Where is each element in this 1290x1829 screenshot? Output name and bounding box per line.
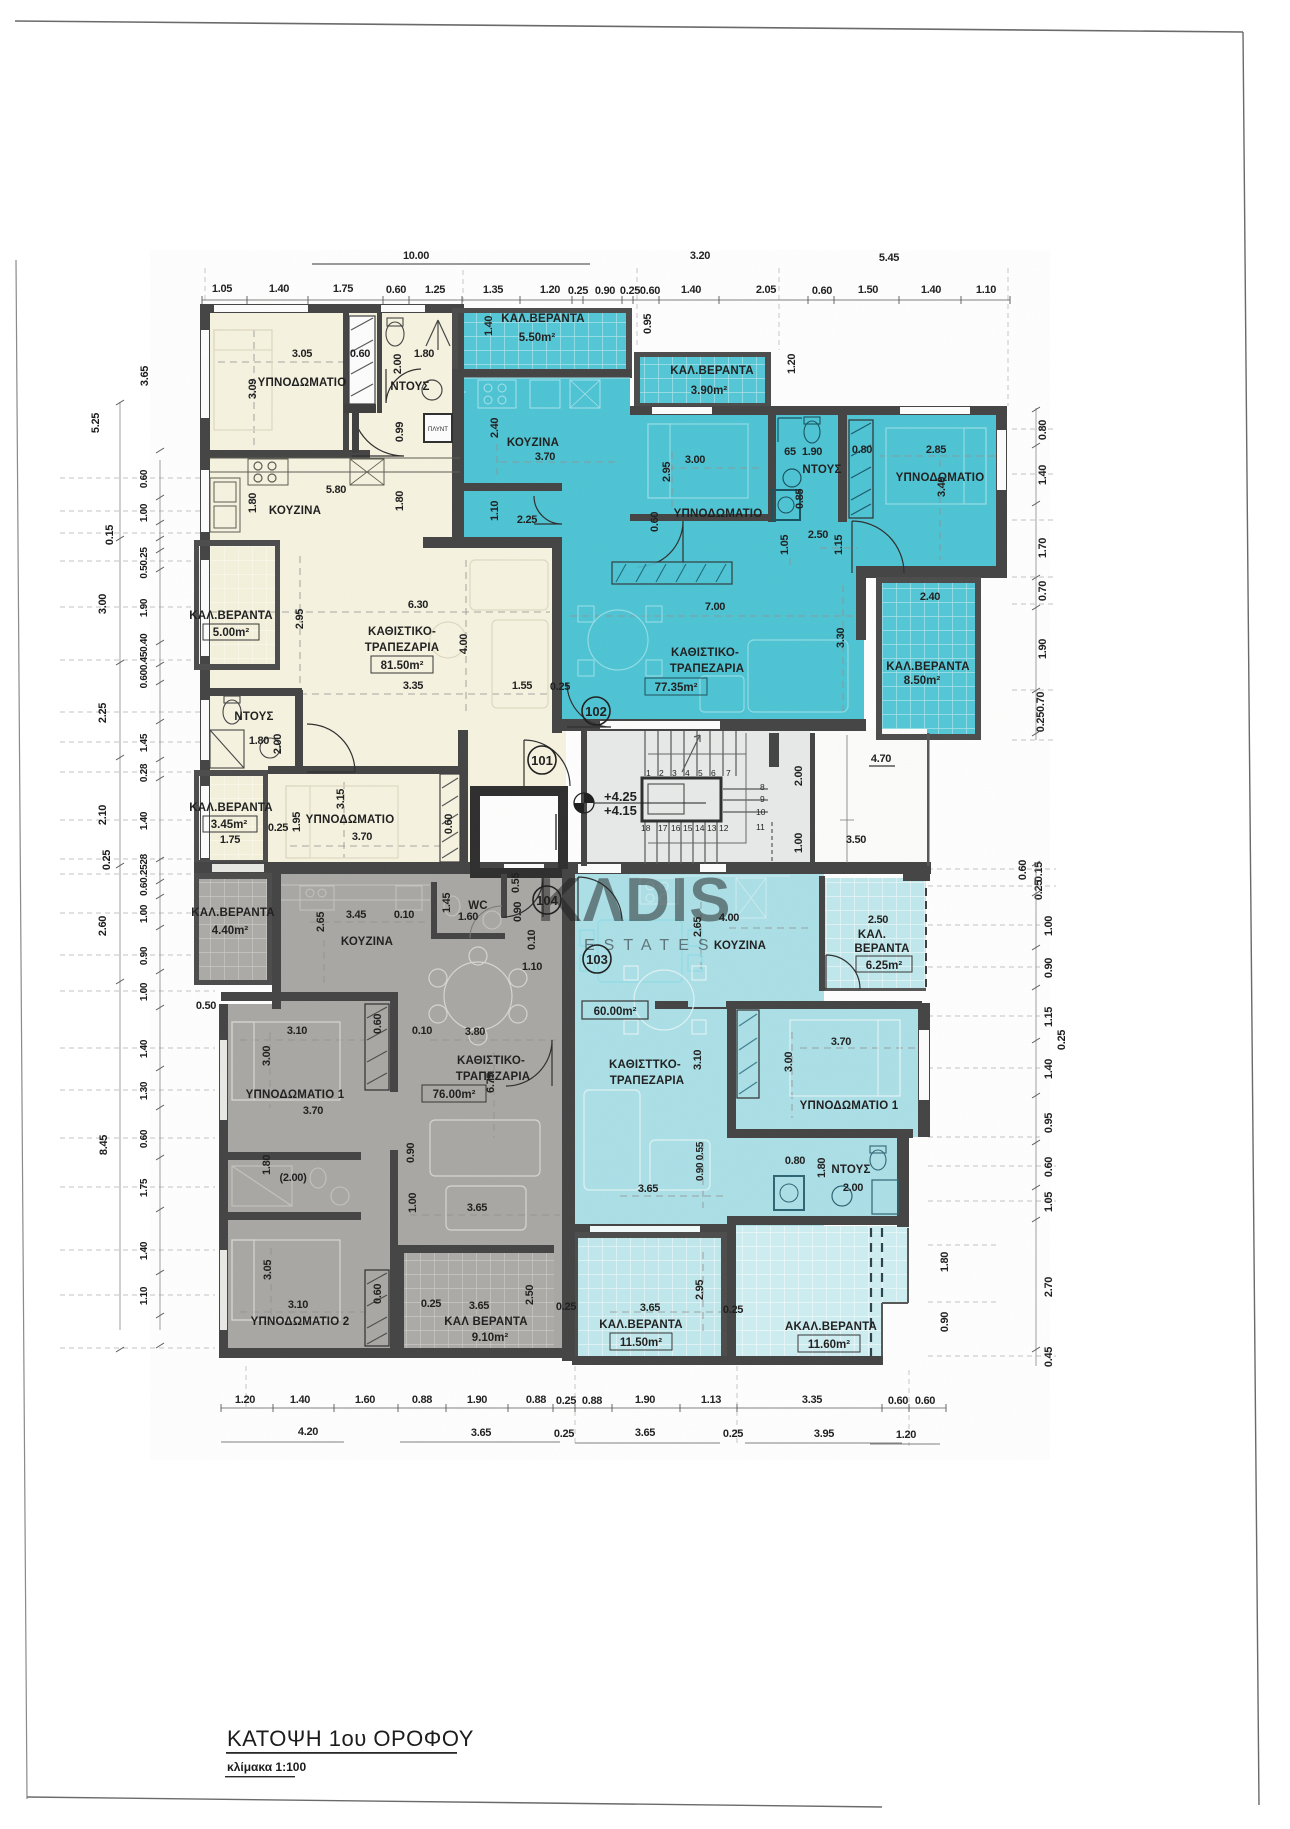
svg-text:1.10: 1.10 (139, 1286, 150, 1305)
svg-text:1.90: 1.90 (139, 598, 150, 617)
svg-text:2.25: 2.25 (97, 703, 109, 723)
svg-text:0.60: 0.60 (139, 1129, 150, 1148)
svg-text:8.45: 8.45 (98, 1135, 110, 1155)
svg-text:1.40: 1.40 (139, 1039, 150, 1058)
svg-text:1.00: 1.00 (139, 904, 150, 923)
svg-text:3.00: 3.00 (97, 594, 109, 614)
svg-text:0.60.2528: 0.60.2528 (139, 853, 150, 896)
svg-text:2.60: 2.60 (97, 916, 109, 936)
svg-text:2.10: 2.10 (97, 805, 109, 825)
svg-text:0.25: 0.25 (1056, 1030, 1068, 1050)
svg-text:ΚΑΤΟΨΗ 1ου ΟΡΟΦΟΥ: ΚΑΤΟΨΗ 1ου ΟΡΟΦΟΥ (227, 1726, 474, 1751)
svg-text:0.25: 0.25 (101, 850, 113, 870)
svg-text:0.600.450.40: 0.600.450.40 (139, 633, 150, 689)
svg-text:1.40: 1.40 (139, 1241, 150, 1260)
svg-text:0.28: 0.28 (139, 763, 150, 782)
svg-text:0.60: 0.60 (139, 469, 150, 488)
svg-text:0.15: 0.15 (104, 525, 116, 545)
svg-text:0.50.25: 0.50.25 (139, 547, 150, 579)
svg-text:5.25: 5.25 (90, 413, 102, 433)
svg-text:0.90: 0.90 (139, 946, 150, 965)
svg-text:1.75: 1.75 (139, 1178, 150, 1197)
svg-text:κλίμακα 1:100: κλίμακα 1:100 (227, 1760, 306, 1774)
svg-text:1.45: 1.45 (139, 733, 150, 752)
svg-text:1.30: 1.30 (139, 1081, 150, 1100)
svg-text:3.65: 3.65 (139, 366, 151, 386)
svg-text:1.00: 1.00 (139, 503, 150, 522)
svg-text:1.00: 1.00 (139, 982, 150, 1001)
svg-text:1.40: 1.40 (139, 811, 150, 830)
